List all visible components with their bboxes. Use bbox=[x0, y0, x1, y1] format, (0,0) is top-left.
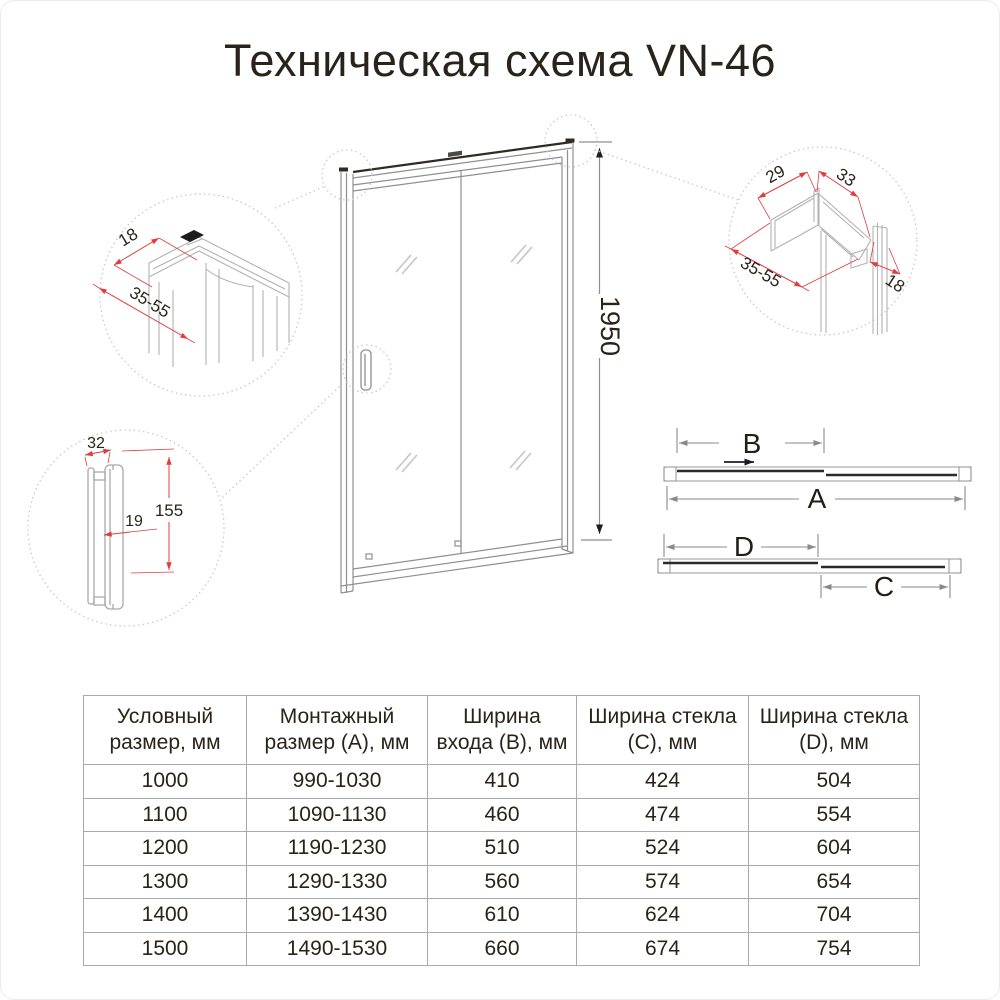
table-cell: 1490-1530 bbox=[247, 932, 428, 966]
handle-depth-label: 19 bbox=[125, 513, 143, 530]
main-door-drawing bbox=[341, 142, 573, 593]
header-glass-width-c: Ширина стекла (С), мм bbox=[577, 696, 749, 765]
dim-b-label: B bbox=[743, 428, 762, 459]
detail-top-left-sketch bbox=[149, 237, 289, 367]
table-cell: 1200 bbox=[84, 832, 247, 866]
table-header-row: Условный размер, мм Монтажный размер (А)… bbox=[84, 696, 920, 765]
table-cell: 654 bbox=[749, 865, 920, 899]
table-cell: 1300 bbox=[84, 865, 247, 899]
table-cell: 560 bbox=[428, 865, 577, 899]
table-cell: 1390-1430 bbox=[247, 899, 428, 933]
table-cell: 1400 bbox=[84, 899, 247, 933]
top-right-range-label: 35-55 bbox=[737, 253, 784, 291]
table-cell: 1190-1230 bbox=[247, 832, 428, 866]
table-cell: 474 bbox=[577, 798, 749, 832]
table-row: 1100 1090-1130 460 474 554 bbox=[84, 798, 920, 832]
table-cell: 1290-1330 bbox=[247, 865, 428, 899]
technical-scheme-page: Техническая схема VN-46 bbox=[0, 0, 1000, 1000]
table-row: 1300 1290-1330 560 574 654 bbox=[84, 865, 920, 899]
table-cell: 610 bbox=[428, 899, 577, 933]
table-row: 1400 1390-1430 610 624 704 bbox=[84, 899, 920, 933]
table-cell: 1090-1130 bbox=[247, 798, 428, 832]
table-cell: 424 bbox=[577, 765, 749, 799]
zoom-circle-handle bbox=[343, 345, 391, 393]
table-cell: 754 bbox=[749, 932, 920, 966]
table-cell: 510 bbox=[428, 832, 577, 866]
connector-top-left bbox=[275, 187, 323, 208]
table-cell: 524 bbox=[577, 832, 749, 866]
table-cell: 504 bbox=[749, 765, 920, 799]
table-cell: 1100 bbox=[84, 798, 247, 832]
table-cell: 990-1030 bbox=[247, 765, 428, 799]
header-mounting-size-a: Монтажный размер (А), мм bbox=[247, 696, 428, 765]
top-right-outer-width-label: 33 bbox=[833, 164, 859, 190]
handle-height-label: 155 bbox=[155, 501, 183, 520]
connector-top-right bbox=[595, 150, 741, 201]
top-view-bar-closed bbox=[664, 467, 971, 481]
table-row: 1200 1190-1230 510 524 604 bbox=[84, 832, 920, 866]
dim-a-label: A bbox=[808, 483, 827, 514]
top-right-inner-width-label: 29 bbox=[762, 161, 788, 187]
glass-reflection-marks bbox=[396, 245, 532, 472]
table-cell: 1500 bbox=[84, 932, 247, 966]
table-cell: 604 bbox=[749, 832, 920, 866]
table-cell: 674 bbox=[577, 932, 749, 966]
table-row: 1000 990-1030 410 424 504 bbox=[84, 765, 920, 799]
table-cell: 410 bbox=[428, 765, 577, 799]
header-entry-width-b: Ширина входа (В), мм bbox=[428, 696, 577, 765]
table-cell: 704 bbox=[749, 899, 920, 933]
dim-c-label: C bbox=[874, 571, 894, 602]
top-view-bar-open bbox=[658, 559, 961, 573]
header-glass-width-d: Ширина стекла (D), мм bbox=[749, 696, 920, 765]
table-cell: 1000 bbox=[84, 765, 247, 799]
dim-d-label: D bbox=[734, 531, 754, 562]
header-nominal-size: Условный размер, мм bbox=[84, 696, 247, 765]
connector-handle bbox=[223, 387, 339, 497]
door-dark-edges bbox=[339, 139, 575, 173]
size-specification-table: Условный размер, мм Монтажный размер (А)… bbox=[83, 695, 920, 966]
top-left-depth-label: 18 bbox=[115, 224, 141, 250]
table-row: 1500 1490-1530 660 674 754 bbox=[84, 932, 920, 966]
top-roller-cap bbox=[448, 151, 462, 157]
detail-circle-top-right bbox=[729, 147, 917, 335]
table-cell: 624 bbox=[577, 899, 749, 933]
detail-handle-sketch bbox=[88, 465, 123, 609]
handle-width-label: 32 bbox=[87, 435, 105, 452]
technical-diagram: 1950 bbox=[1, 1, 1000, 681]
table-cell: 554 bbox=[749, 798, 920, 832]
zoom-markers bbox=[28, 115, 917, 626]
top-left-range-label: 35-55 bbox=[126, 283, 173, 322]
top-right-depth-label: 18 bbox=[882, 270, 908, 296]
table-cell: 660 bbox=[428, 932, 577, 966]
table-cell: 460 bbox=[428, 798, 577, 832]
door-handle bbox=[361, 350, 371, 390]
table-cell: 574 bbox=[577, 865, 749, 899]
detail-top-right-sketch bbox=[771, 188, 887, 335]
door-height-label: 1950 bbox=[595, 296, 625, 356]
